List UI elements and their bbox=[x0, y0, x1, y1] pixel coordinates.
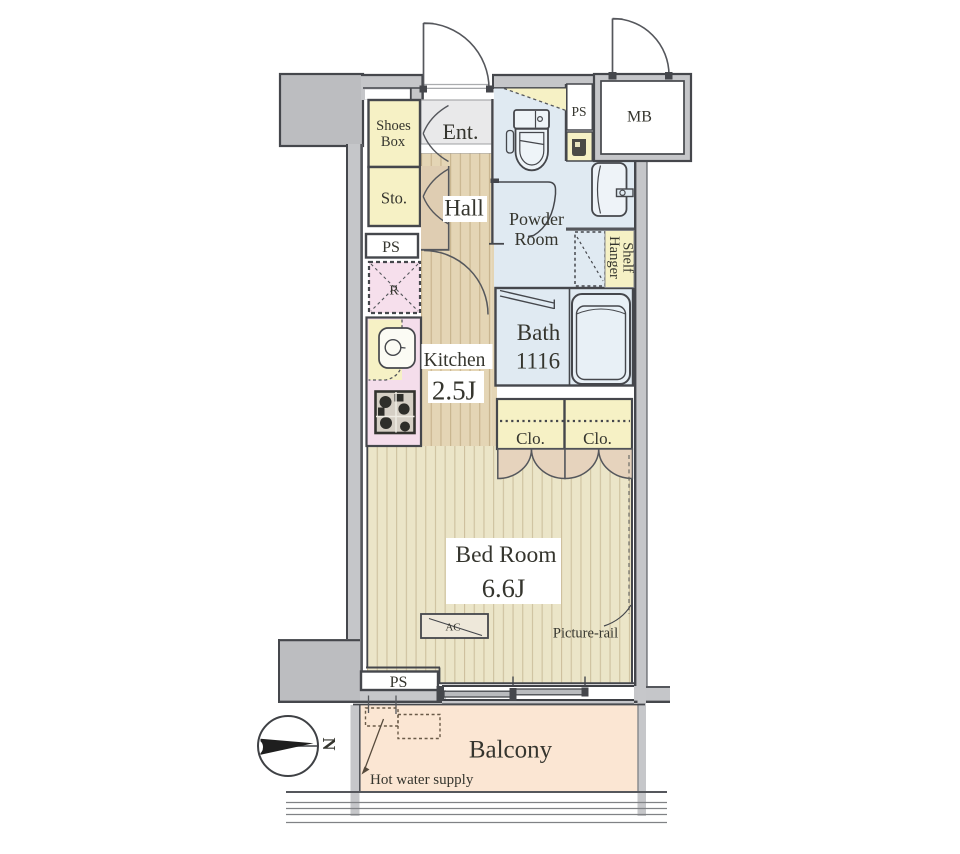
svg-text:AC: AC bbox=[445, 622, 460, 634]
svg-text:PS: PS bbox=[571, 104, 586, 119]
svg-text:Powder: Powder bbox=[509, 209, 564, 229]
svg-text:6.6J: 6.6J bbox=[482, 573, 525, 603]
svg-text:Sto.: Sto. bbox=[381, 189, 407, 208]
svg-text:2.5J: 2.5J bbox=[432, 376, 476, 406]
svg-text:Box: Box bbox=[381, 134, 406, 150]
svg-text:Clo.: Clo. bbox=[583, 429, 612, 448]
svg-text:Room: Room bbox=[514, 229, 558, 249]
svg-text:1116: 1116 bbox=[516, 349, 560, 374]
svg-text:Picture-rail: Picture-rail bbox=[553, 626, 618, 642]
svg-text:N: N bbox=[319, 738, 339, 751]
svg-text:Shelf: Shelf bbox=[620, 242, 636, 273]
svg-text:Ent.: Ent. bbox=[442, 119, 478, 144]
svg-text:Shoes: Shoes bbox=[376, 118, 411, 134]
svg-text:MB: MB bbox=[627, 109, 652, 126]
svg-text:Kitchen: Kitchen bbox=[424, 350, 486, 371]
svg-text:PS: PS bbox=[390, 674, 408, 691]
svg-text:R: R bbox=[389, 284, 399, 299]
svg-text:Clo.: Clo. bbox=[516, 429, 545, 448]
svg-text:Bed Room: Bed Room bbox=[455, 542, 556, 568]
svg-text:Hall: Hall bbox=[444, 196, 484, 221]
svg-text:Hot water supply: Hot water supply bbox=[370, 772, 474, 788]
svg-text:Bath: Bath bbox=[517, 320, 561, 345]
svg-text:PS: PS bbox=[382, 239, 400, 256]
svg-text:Balcony: Balcony bbox=[469, 737, 553, 764]
